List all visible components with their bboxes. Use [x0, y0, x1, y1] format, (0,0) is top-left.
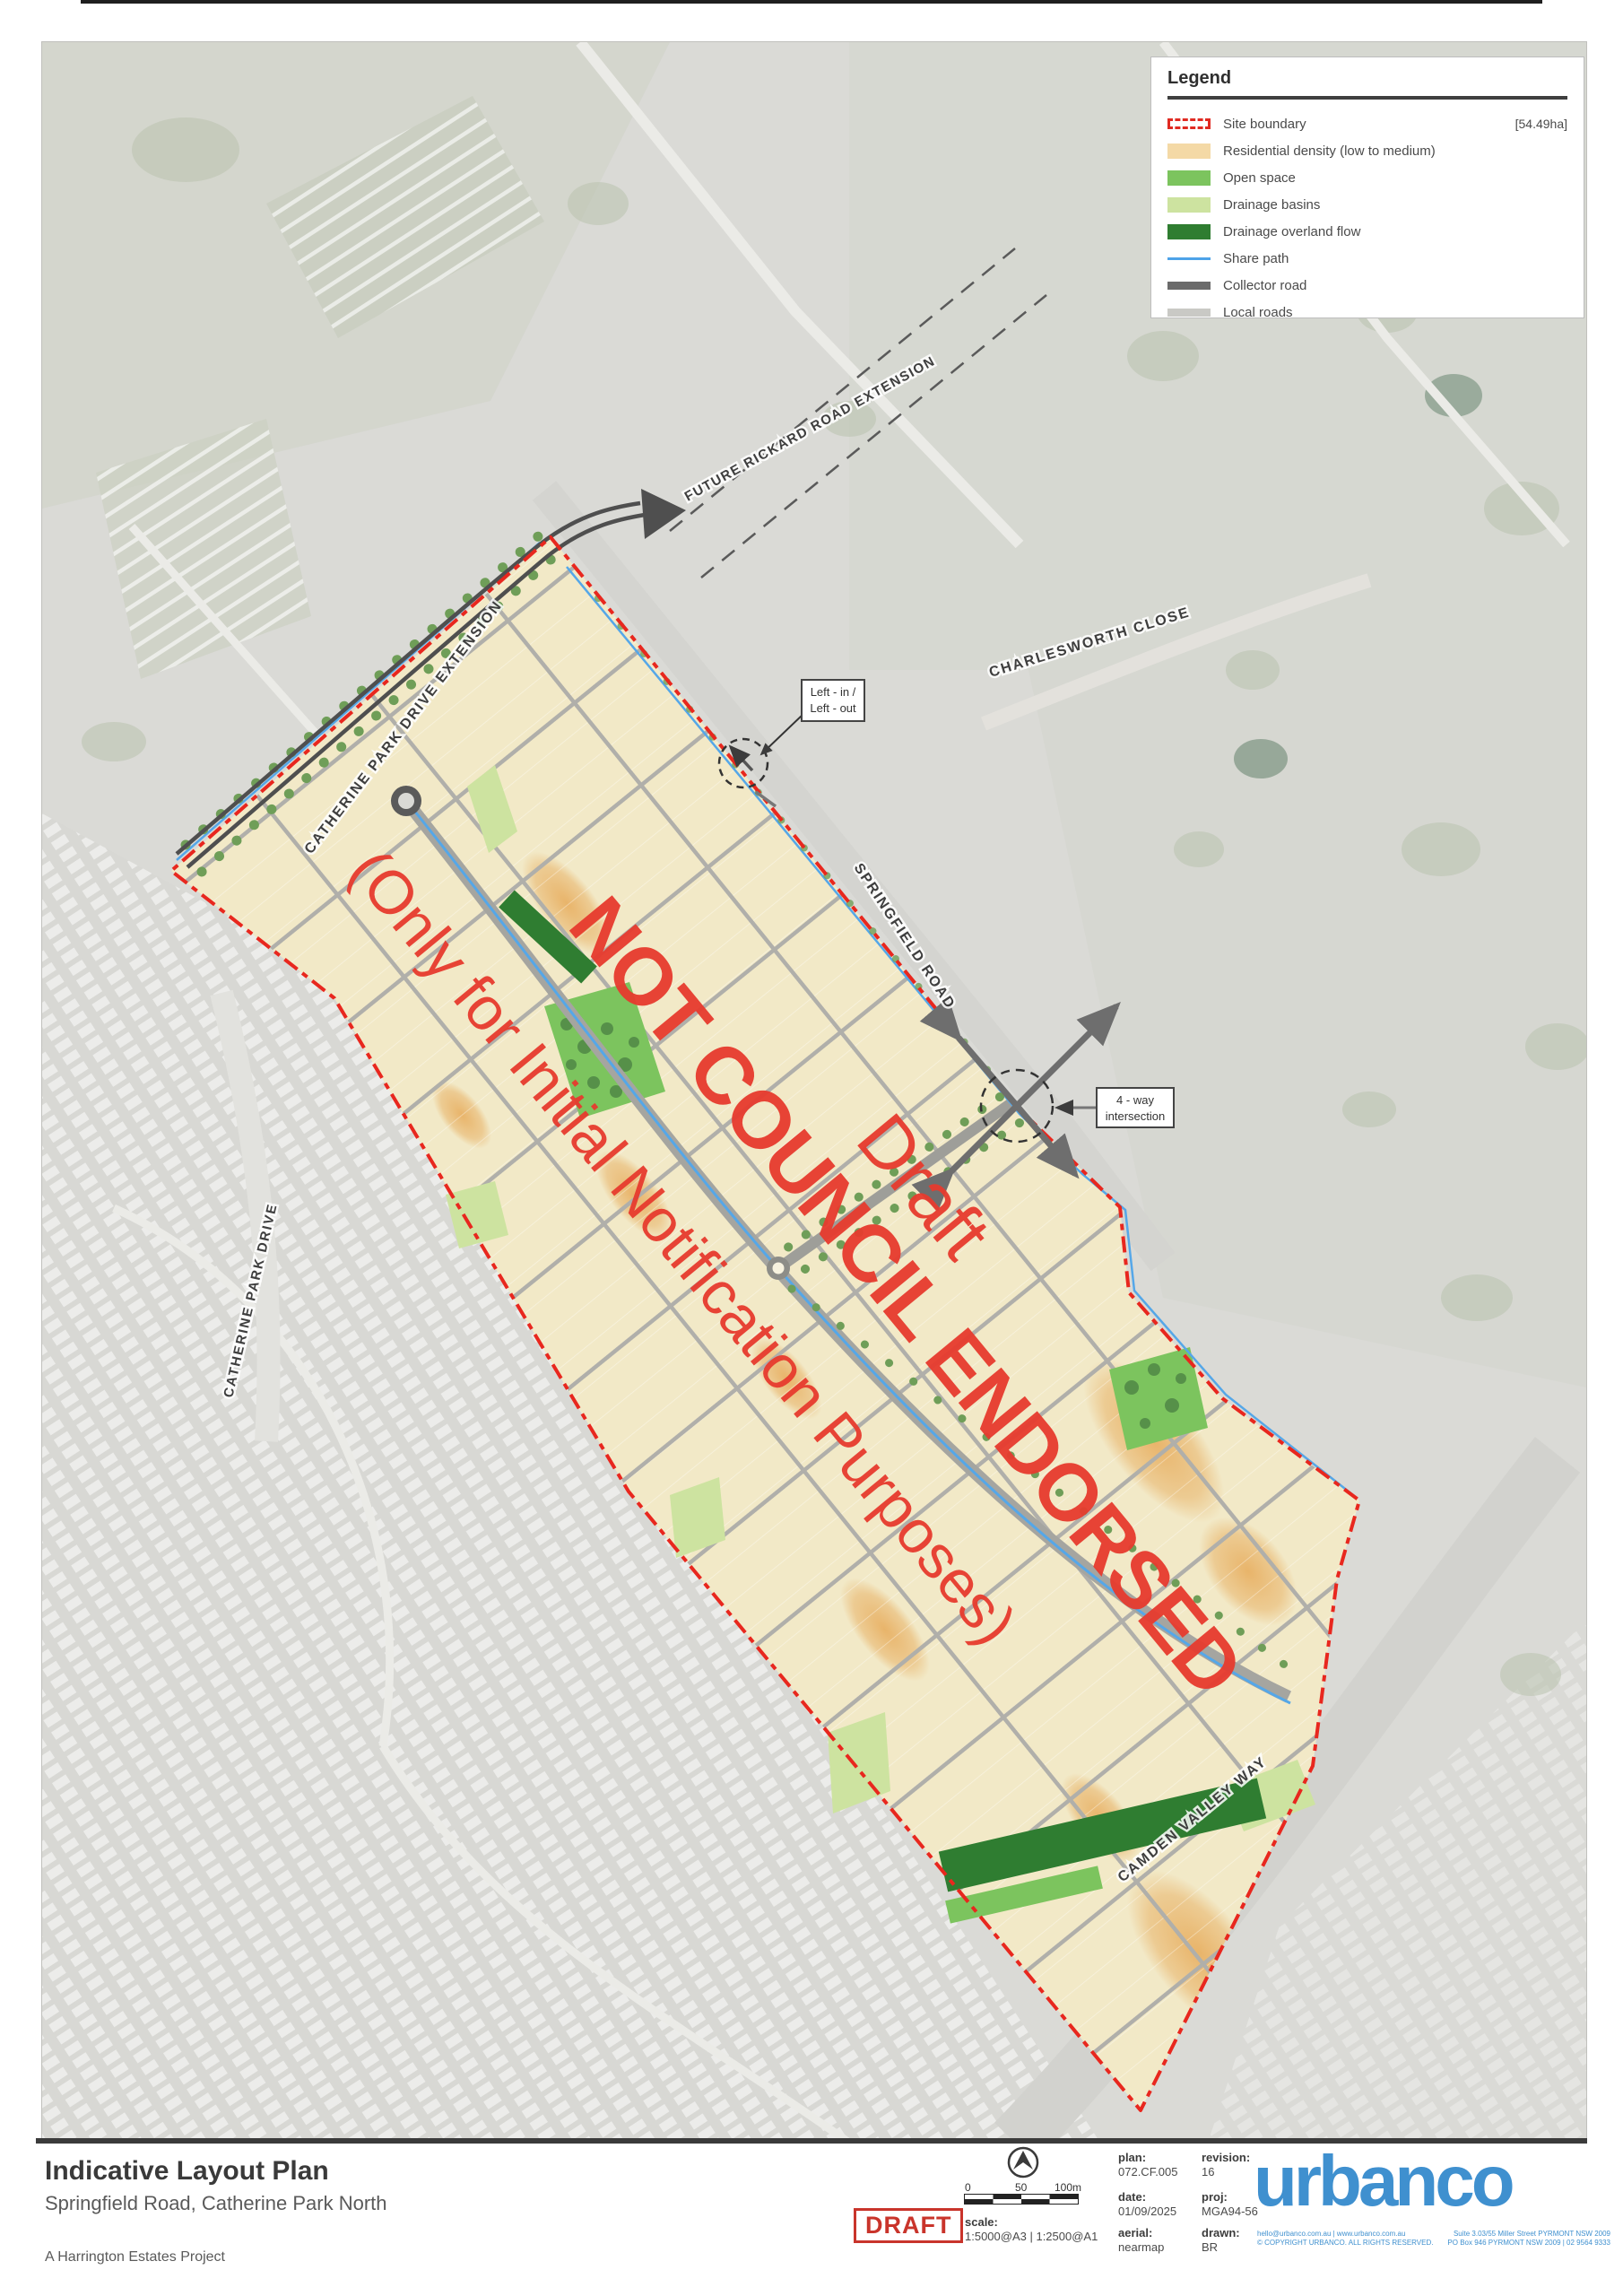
scale-bar: 0 50 100m	[965, 2181, 1081, 2204]
open-space-swatch	[1167, 170, 1211, 186]
legend-item-local-roads: Local roads	[1167, 299, 1567, 326]
sheet-top-edge	[81, 0, 1542, 4]
scale-bar-graphic	[965, 2195, 1078, 2204]
meta-date: date: 01/09/2025	[1118, 2190, 1176, 2219]
legend-item-collector-road: Collector road	[1167, 272, 1567, 299]
legend-divider	[1167, 96, 1567, 100]
draft-stamp: DRAFT	[854, 2208, 963, 2243]
scale-tick-0: 0	[965, 2181, 971, 2194]
meta-aerial: aerial: nearmap	[1118, 2226, 1164, 2255]
pond	[1234, 739, 1288, 778]
share-path-swatch	[1167, 257, 1211, 260]
meta-scale: scale: 1:5000@A3 | 1:2500@A1	[965, 2215, 1098, 2244]
legend-item-open-space: Open space	[1167, 164, 1567, 191]
page-subtitle: Springfield Road, Catherine Park North	[45, 2192, 387, 2215]
north-arrow-icon	[1002, 2141, 1045, 2184]
legend-panel: Legend Site boundary [54.49ha] Residenti…	[1150, 57, 1584, 318]
site-area-value: [54.49ha]	[1515, 117, 1567, 131]
four-way-label-2: intersection	[1106, 1109, 1165, 1123]
collector-road-swatch	[1167, 282, 1211, 290]
residential-swatch	[1167, 143, 1211, 159]
legend-item-drainage-basins: Drainage basins	[1167, 191, 1567, 218]
local-roads-swatch	[1167, 309, 1211, 317]
page-title: Indicative Layout Plan	[45, 2156, 329, 2187]
project-note: A Harrington Estates Project	[45, 2249, 225, 2266]
brand-address: Suite 3.03/55 Miller Street PYRMONT NSW …	[1435, 2230, 1610, 2248]
drainage-basin-swatch	[1167, 197, 1211, 213]
legend-title: Legend	[1167, 68, 1567, 89]
meta-revision: revision: 16	[1202, 2151, 1250, 2179]
map-canvas: Left - in / Left - out 4 - way intersect…	[41, 41, 1587, 2144]
meta-projection: proj: MGA94-56	[1202, 2190, 1258, 2219]
site-boundary-swatch	[1167, 118, 1211, 129]
drainage-overland-swatch	[1167, 224, 1211, 239]
left-in-label-2: Left - out	[810, 701, 856, 715]
legend-item-residential: Residential density (low to medium)	[1167, 137, 1567, 164]
four-way-label-1: 4 - way	[1116, 1093, 1154, 1107]
scale-tick-50: 50	[1015, 2181, 1027, 2194]
meta-plan: plan: 072.CF.005	[1118, 2151, 1178, 2179]
plan-sheet: Left - in / Left - out 4 - way intersect…	[0, 0, 1623, 2296]
legend-item-drainage-overland: Drainage overland flow	[1167, 218, 1567, 245]
scale-tick-100: 100m	[1055, 2181, 1081, 2194]
meta-drawn: drawn: BR	[1202, 2226, 1240, 2255]
brand-contact: hello@urbanco.com.au | www.urbanco.com.a…	[1257, 2230, 1433, 2248]
left-in-label-1: Left - in /	[811, 685, 856, 699]
legend-item-site-boundary: Site boundary [54.49ha]	[1167, 110, 1567, 137]
legend-item-share-path: Share path	[1167, 245, 1567, 272]
urbanco-logo: urbanco	[1254, 2140, 1512, 2222]
